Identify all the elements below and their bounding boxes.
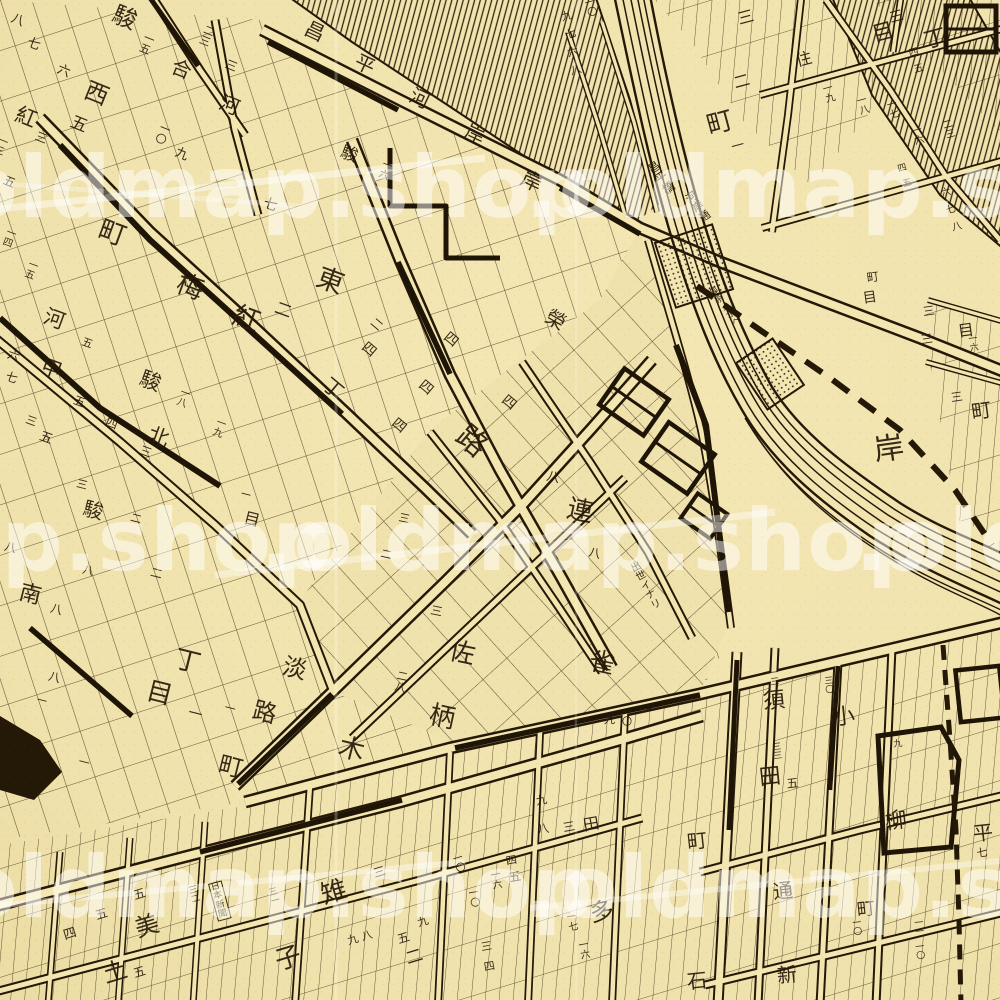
scan-noise bbox=[0, 0, 1000, 1000]
old-map-scan: 八七六駿一五西五紅三二三三合河一〇九五一三町梅紅東二七駿一六一四一五六七河甲駿北… bbox=[0, 0, 1000, 1000]
map-artwork bbox=[0, 0, 1000, 1000]
